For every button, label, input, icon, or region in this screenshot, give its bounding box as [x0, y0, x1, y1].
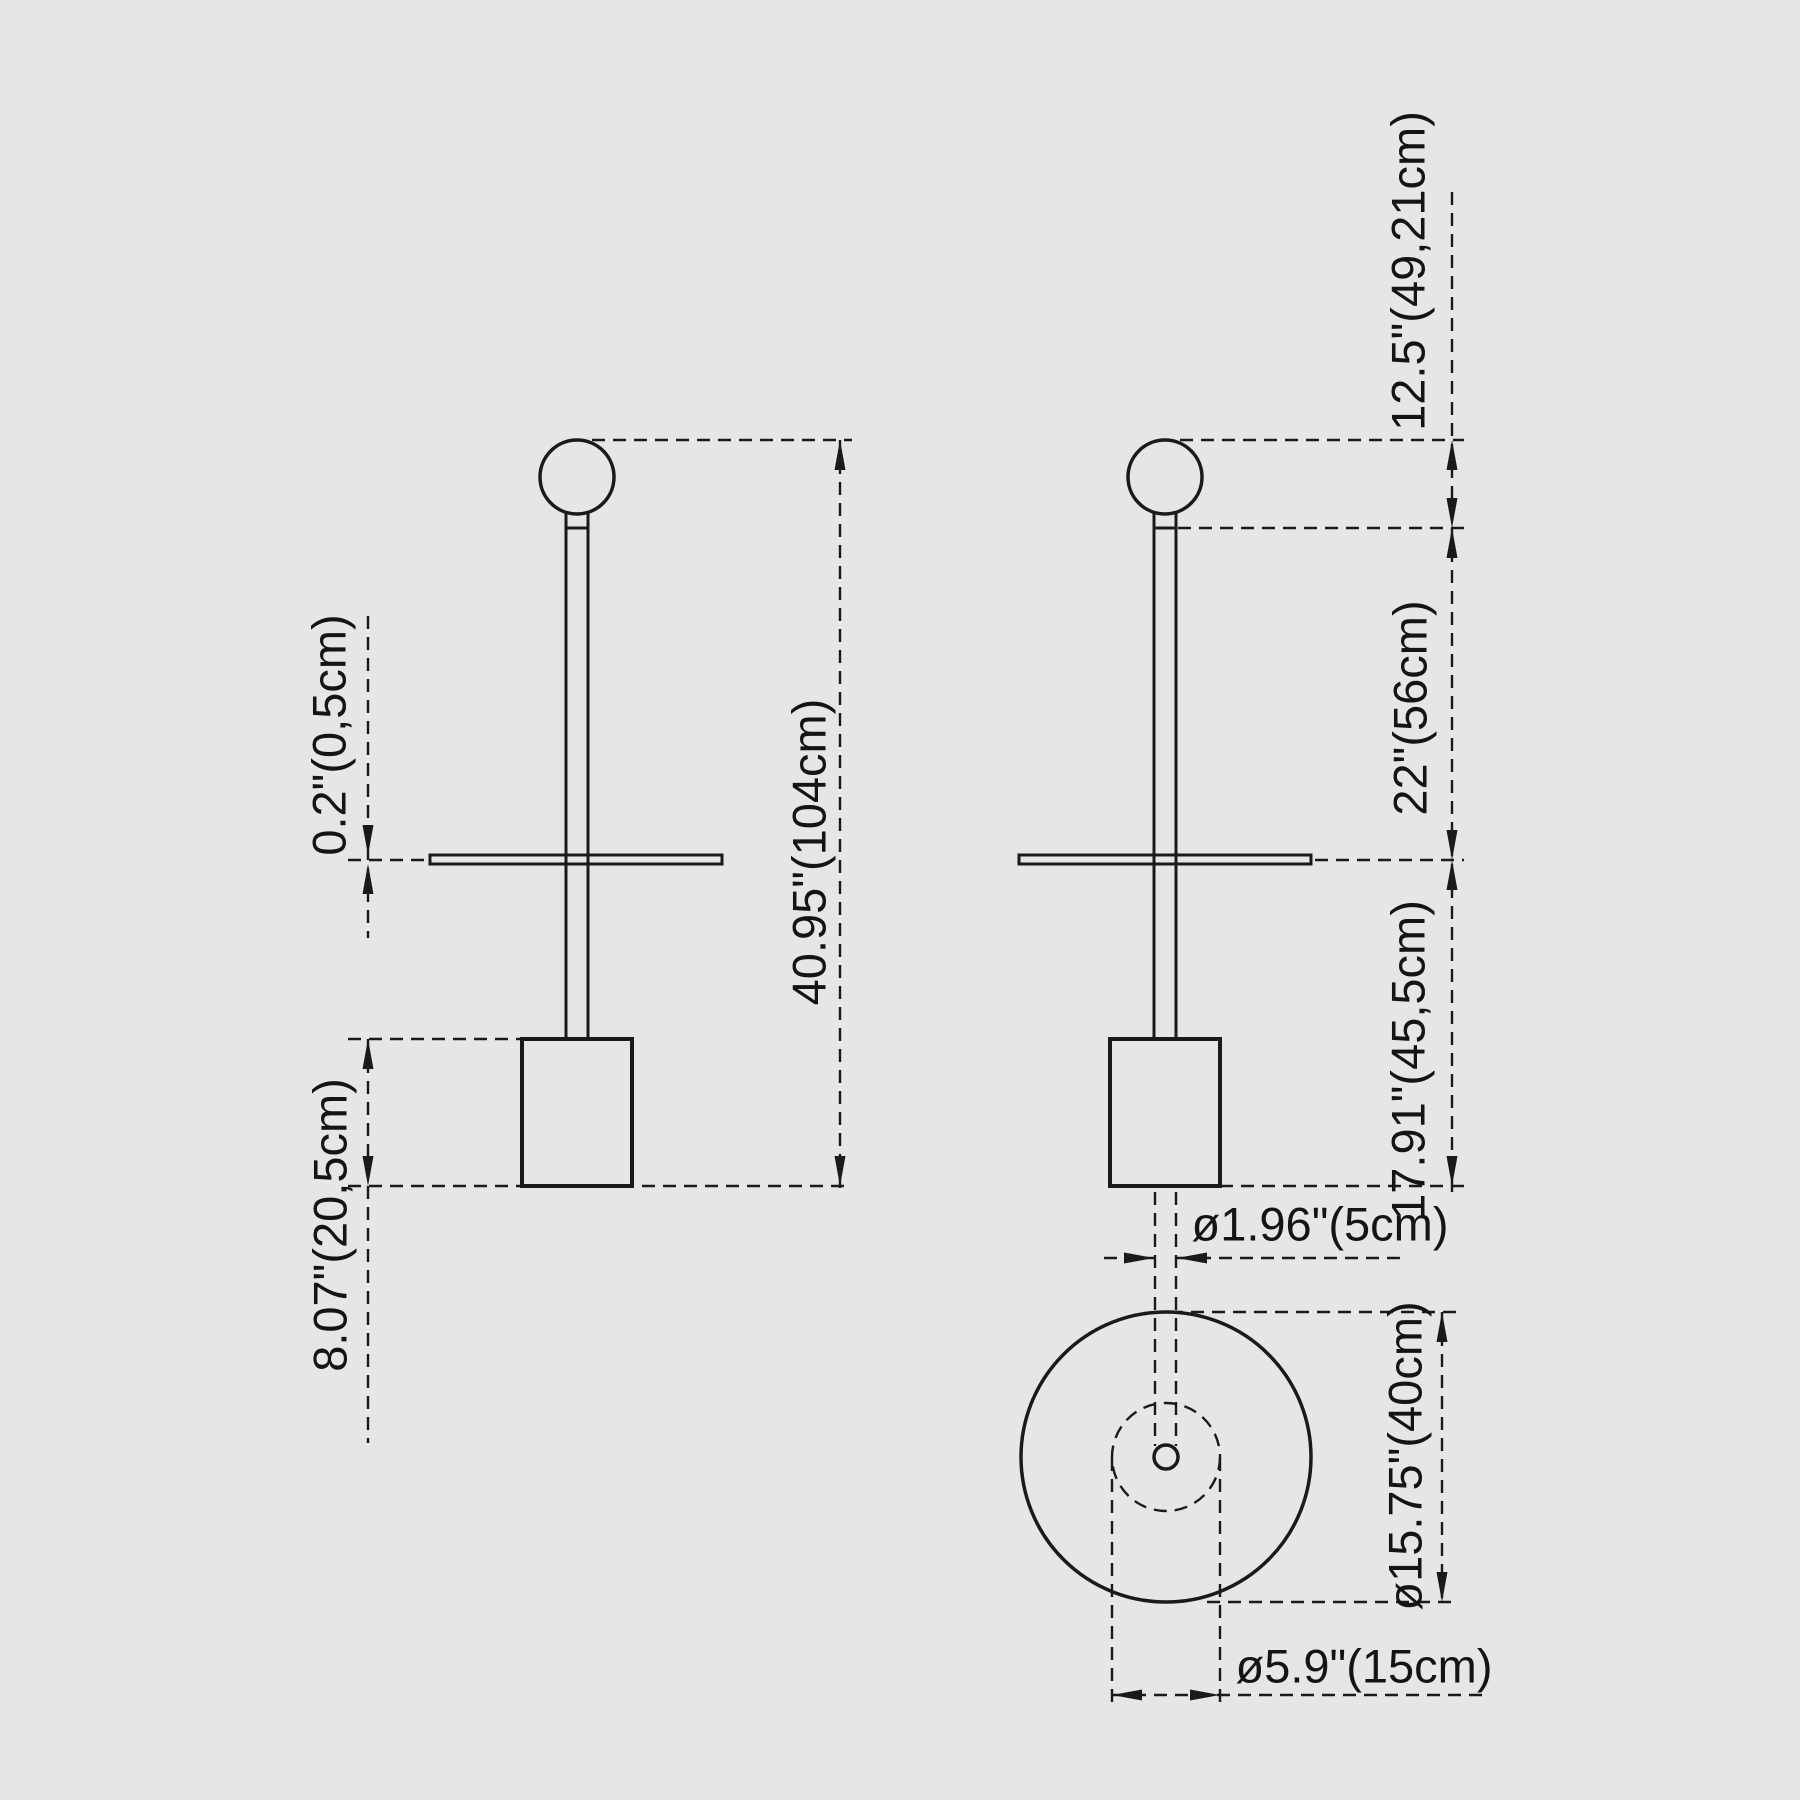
- dim-label-head-height: 12.5"(49,21cm): [1381, 111, 1436, 431]
- dim-label-base-diameter: ø5.9"(15cm): [1236, 1639, 1493, 1694]
- side-pole: [1154, 512, 1176, 1039]
- dimension-lines: [348, 192, 1490, 1710]
- technical-drawing-page: 0.2"(0,5cm) 8.07"(20,5cm) 40.95"(104cm) …: [0, 0, 1800, 1800]
- front-pole: [566, 512, 588, 1039]
- dim-label-total-height: 40.95"(104cm): [782, 699, 837, 1006]
- top-view: [1021, 1312, 1311, 1602]
- dim-label-table-diameter: ø15.75"(40cm): [1378, 1301, 1433, 1610]
- front-sphere-head: [540, 440, 614, 514]
- front-base: [522, 1039, 632, 1186]
- dim-label-base-height: 8.07"(20,5cm): [303, 1078, 358, 1372]
- dim-label-disc-thickness: 0.2"(0,5cm): [302, 614, 357, 855]
- side-table-disc: [1019, 855, 1311, 864]
- side-base: [1110, 1039, 1220, 1186]
- dim-label-lower-section: 17.91"(45,5cm): [1381, 900, 1436, 1220]
- dim-label-pole-diameter: ø1.96"(5cm): [1192, 1197, 1449, 1252]
- top-pole-circle: [1154, 1445, 1178, 1469]
- front-view-lamp: [430, 440, 722, 1186]
- front-table-disc: [430, 855, 722, 864]
- lamp-dimension-drawing: [0, 0, 1800, 1800]
- side-sphere-head: [1128, 440, 1202, 514]
- side-view-lamp: [1019, 440, 1311, 1186]
- dim-label-upper-section: 22"(56cm): [1383, 600, 1438, 815]
